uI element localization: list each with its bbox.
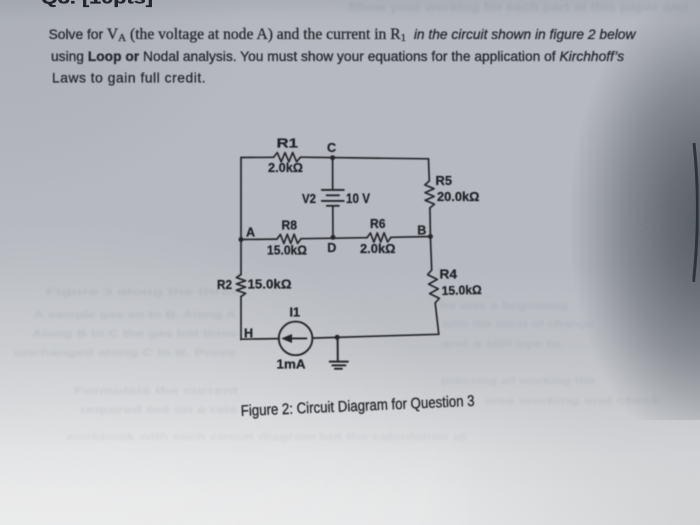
svg-text:I1: I1: [290, 306, 301, 320]
svg-text:R4: R4: [440, 268, 458, 282]
svg-text:Show your working for each par: Show your working for each part at this …: [348, 2, 688, 14]
svg-text:R2: R2: [217, 278, 232, 292]
svg-text:Figure 3 along the three: Figure 3 along the three: [46, 286, 240, 298]
svg-text:required out on a rate: required out on a rate: [80, 404, 238, 416]
svg-text:B: B: [417, 224, 426, 238]
svg-text:Q3. [10pts]: Q3. [10pts]: [41, 0, 153, 7]
svg-text:15.0kΩ: 15.0kΩ: [267, 244, 307, 258]
svg-text:workbook with each circuit dia: workbook with each circuit diagram but t…: [65, 431, 467, 443]
svg-text:Laws to gain full credit.: Laws to gain full credit.: [52, 71, 206, 86]
svg-text:A: A: [246, 225, 255, 239]
svg-text:unchanged along C to B. Prove: unchanged along C to B. Prove: [14, 347, 236, 359]
svg-text:R6: R6: [370, 217, 386, 231]
svg-text:15.0kΩ: 15.0kΩ: [248, 278, 292, 292]
svg-text:D: D: [327, 241, 336, 255]
svg-text:was working and check: was working and check: [483, 395, 661, 407]
svg-text:using Loop or Nodal analysis.: using Loop or Nodal analysis. You must s…: [51, 49, 624, 64]
svg-text:C: C: [327, 141, 336, 155]
svg-text:A sample gas on to B. Along A: A sample gas on to B. Along A: [34, 309, 237, 321]
svg-text:2.0kΩ: 2.0kΩ: [268, 161, 303, 175]
svg-text:20.0kΩ: 20.0kΩ: [437, 190, 480, 204]
svg-text:15.0kΩ: 15.0kΩ: [442, 283, 482, 298]
svg-text:Along B to C the gas hot three: Along B to C the gas hot three: [32, 328, 238, 340]
svg-text:R5: R5: [436, 174, 453, 188]
svg-text:Formulate the current: Formulate the current: [74, 385, 239, 397]
svg-text:V2: V2: [302, 192, 316, 206]
svg-text:1mA: 1mA: [277, 357, 307, 372]
svg-text:and a still eye to: and a still eye to: [441, 338, 561, 350]
svg-text:2.0kΩ: 2.0kΩ: [360, 242, 396, 256]
svg-text:pressing all working the: pressing all working the: [441, 375, 595, 387]
svg-text:he was a beginning: he was a beginning: [440, 300, 568, 312]
svg-text:Solve for VA (the voltage at n: Solve for VA (the voltage at node A) and…: [49, 26, 637, 44]
svg-text:R1: R1: [277, 137, 299, 151]
svg-text:H: H: [244, 327, 253, 341]
svg-text:10 V: 10 V: [346, 191, 370, 206]
svg-text:with the most of change: with the most of change: [441, 318, 594, 330]
svg-text:R8: R8: [282, 218, 298, 232]
